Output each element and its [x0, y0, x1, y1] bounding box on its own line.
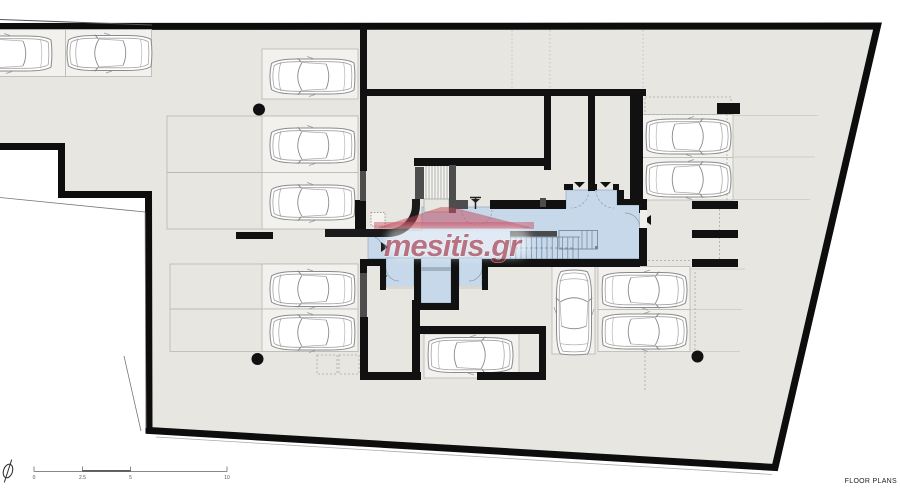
svg-text:10: 10 [224, 475, 230, 481]
svg-text:5: 5 [129, 475, 132, 481]
svg-text:0: 0 [33, 475, 36, 481]
svg-text:mesitis.gr: mesitis.gr [384, 228, 523, 263]
svg-text:FLOOR PLANS: FLOOR PLANS [845, 478, 897, 485]
svg-text:2.5: 2.5 [79, 475, 86, 481]
